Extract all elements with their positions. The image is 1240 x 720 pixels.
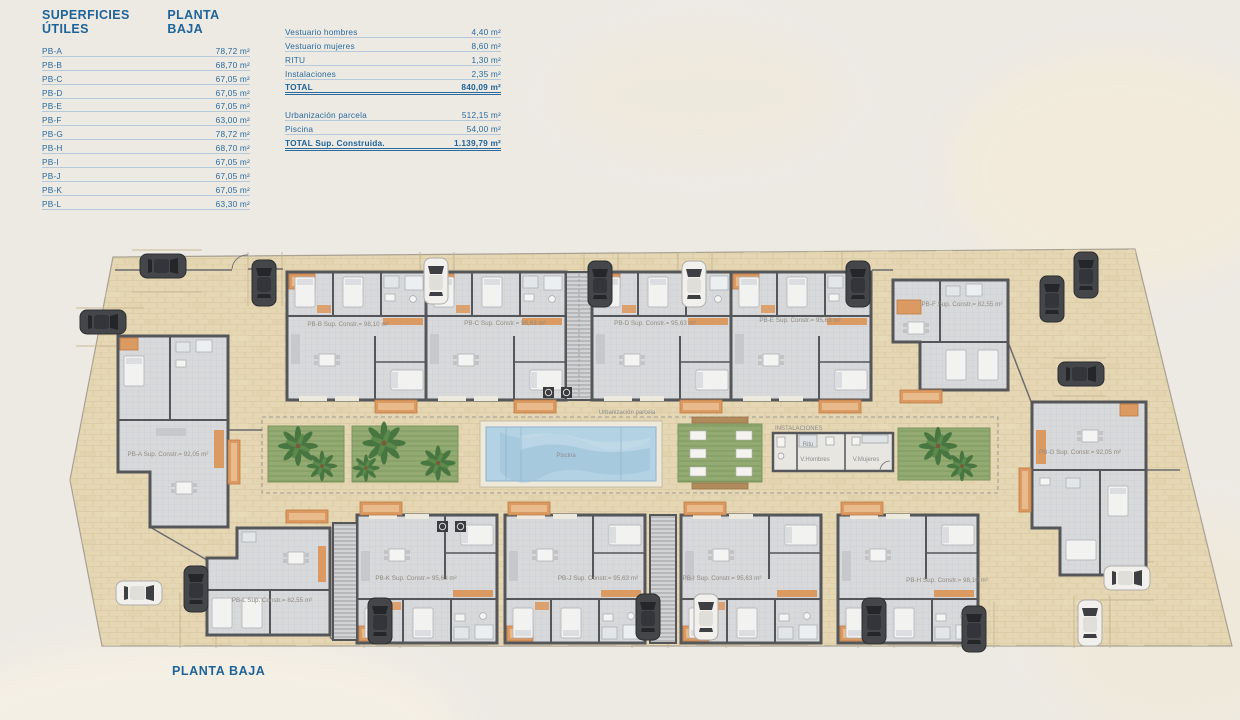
resumen-table: Vestuario hombres4,40 m² Vestuario mujer… (285, 24, 501, 151)
unit-label-pb-d: PB-D Sup. Constr.= 95,63 m² (614, 320, 696, 327)
building-top-strip (287, 272, 871, 413)
car-icon (636, 594, 660, 640)
palm-tree-icon (420, 445, 455, 480)
terrace (360, 502, 402, 515)
row-value: 67,05 m² (216, 101, 250, 111)
table-row: PB-J67,05 m² (42, 168, 250, 182)
table-title-right: PLANTA BAJA (167, 8, 250, 36)
row-value: 512,15 m² (462, 110, 501, 120)
pool-label: Piscina (556, 453, 576, 459)
table-row: Urbanización parcela512,15 m² (285, 107, 501, 121)
car-icon (1078, 600, 1102, 646)
row-value: 2,35 m² (471, 69, 501, 79)
table-row: PB-B68,70 m² (42, 57, 250, 71)
equipment-box (455, 521, 466, 532)
palm-tree-icon (919, 427, 957, 465)
car-icon (1104, 566, 1150, 590)
urbanizacion-label: Urbanización parcela (599, 410, 656, 416)
row-label: PB-G (42, 129, 63, 139)
total-row: TOTAL Sup. Construida.1.139,79 m² (285, 135, 501, 151)
row-value: 78,72 m² (216, 129, 250, 139)
row-value: 67,05 m² (216, 185, 250, 195)
car-icon (140, 254, 186, 278)
unit-pb-d (592, 272, 732, 401)
row-label: TOTAL Sup. Construida. (285, 138, 385, 148)
terrace (684, 502, 726, 515)
palm-tree-icon (352, 454, 379, 481)
pool: Piscina (480, 421, 662, 487)
row-label: Instalaciones (285, 69, 336, 79)
terrace (819, 400, 861, 413)
row-value: 1.139,79 m² (454, 138, 501, 148)
table-row: RITU1,30 m² (285, 52, 501, 66)
terrace (375, 400, 417, 413)
car-icon (588, 261, 612, 307)
unit-label-pb-k: PB-K Sup. Constr.= 95,63 m² (375, 575, 456, 582)
terrace (900, 390, 942, 403)
table-title: SUPERFICIES ÚTILES PLANTA BAJA (42, 8, 250, 36)
unit-label-pb-e: PB-E Sup. Constr.= 95,63 m² (759, 317, 840, 324)
equipment-box (543, 387, 554, 398)
car-icon (862, 598, 886, 644)
unit-label-pb-f: PB-F Sup. Constr.= 82,55 m² (921, 301, 1002, 308)
terrace (286, 510, 328, 523)
row-label: TOTAL (285, 82, 313, 92)
unit-label-pb-h: PB-H Sup. Constr.= 98,10 m² (906, 577, 988, 584)
row-value: 63,00 m² (216, 115, 250, 125)
terrace (508, 502, 550, 515)
car-icon (846, 261, 870, 307)
row-label: Vestuario mujeres (285, 41, 355, 51)
row-value: 78,72 m² (216, 46, 250, 56)
row-value: 67,05 m² (216, 88, 250, 98)
table-title-left: SUPERFICIES ÚTILES (42, 8, 167, 36)
terrace (841, 502, 883, 515)
terrace (228, 440, 240, 484)
row-label: Urbanización parcela (285, 110, 367, 120)
table-row: Instalaciones2,35 m² (285, 66, 501, 80)
service-block: INSTALACIONES Ritu V.Hombres V.Mujeres (773, 426, 893, 471)
row-value: 840,09 m² (461, 82, 501, 92)
row-label: PB-L (42, 199, 61, 209)
unit-label-pb-b: PB-B Sup. Constr.= 98,10 m² (307, 321, 388, 328)
terrace (1019, 468, 1031, 512)
row-value: 8,60 m² (471, 41, 501, 51)
row-label: PB-C (42, 74, 63, 84)
table-row: PB-G78,72 m² (42, 126, 250, 140)
palm-tree-icon (362, 421, 405, 464)
car-icon (1058, 362, 1104, 386)
instalaciones-label: INSTALACIONES (775, 426, 823, 432)
unit-label-pb-g: PB-G Sup. Constr.= 92,05 m² (1039, 449, 1121, 456)
row-value: 67,05 m² (216, 171, 250, 181)
table-row: Vestuario hombres4,40 m² (285, 24, 501, 38)
page: Piscina INSTALACIONES Ri (0, 0, 1240, 720)
unit-label-pb-c: PB-C Sup. Constr.= 95,63 m² (464, 320, 546, 327)
row-value: 1,30 m² (471, 55, 501, 65)
car-icon (368, 598, 392, 644)
row-label: PB-F (42, 115, 62, 125)
total-row: TOTAL840,09 m² (285, 80, 501, 96)
floor-title: PLANTA BAJA (172, 664, 265, 678)
palm-tree-icon (278, 426, 318, 466)
row-label: PB-B (42, 60, 62, 70)
table-row: PB-A78,72 m² (42, 43, 250, 57)
table-row: PB-H68,70 m² (42, 140, 250, 154)
row-value: 67,05 m² (216, 74, 250, 84)
palm-tree-icon (947, 451, 977, 481)
table-row: Piscina54,00 m² (285, 121, 501, 135)
palm-tree-icon (307, 451, 337, 481)
row-label: Piscina (285, 124, 313, 134)
row-label: Vestuario hombres (285, 27, 358, 37)
unit-label-pb-i: PB-I Sup. Constr.= 95,63 m² (683, 575, 762, 582)
unit-label-pb-j: PB-J Sup. Constr.= 95,63 m² (558, 575, 638, 582)
stair-core (333, 523, 357, 640)
row-value: 68,70 m² (216, 60, 250, 70)
car-icon (424, 258, 448, 304)
table-row: PB-C67,05 m² (42, 71, 250, 85)
unit-label-pb-a: PB-A Sup. Constr.= 92,05 m² (127, 451, 208, 458)
table-row: PB-K67,05 m² (42, 182, 250, 196)
equipment-box (437, 521, 448, 532)
row-value: 68,70 m² (216, 143, 250, 153)
row-value: 63,30 m² (216, 199, 250, 209)
row-label: PB-K (42, 185, 62, 195)
terrace (680, 400, 722, 413)
car-icon (252, 260, 276, 306)
row-label: PB-D (42, 88, 63, 98)
equipment-box (561, 387, 572, 398)
car-icon (694, 594, 718, 640)
table-row: PB-D67,05 m² (42, 85, 250, 99)
row-label: PB-E (42, 101, 62, 111)
unit-label-pb-l: PB-L Sup. Constr.= 82,55 m² (232, 597, 312, 604)
car-icon (116, 581, 162, 605)
superficies-table: SUPERFICIES ÚTILES PLANTA BAJA PB-A78,72… (42, 8, 250, 210)
pergola (678, 417, 762, 489)
row-label: PB-H (42, 143, 63, 153)
row-value: 4,40 m² (471, 27, 501, 37)
car-icon (682, 261, 706, 307)
row-label: RITU (285, 55, 305, 65)
table-row: PB-F63,00 m² (42, 112, 250, 126)
row-value: 67,05 m² (216, 157, 250, 167)
table-row: PB-I67,05 m² (42, 154, 250, 168)
ritu-label: Ritu (803, 442, 814, 448)
row-label: PB-A (42, 46, 62, 56)
vestuario-hombres-label: V.Hombres (800, 457, 829, 463)
unit-pb-b (287, 272, 427, 401)
row-label: PB-I (42, 157, 59, 167)
car-icon (1074, 252, 1098, 298)
car-icon (962, 606, 986, 652)
row-label: PB-J (42, 171, 61, 181)
vestuario-mujeres-label: V.Mujeres (853, 457, 879, 463)
car-icon (1040, 276, 1064, 322)
terrace (514, 400, 556, 413)
car-icon (184, 566, 208, 612)
row-value: 54,00 m² (467, 124, 501, 134)
table-row: PB-E67,05 m² (42, 99, 250, 113)
table-row: Vestuario mujeres8,60 m² (285, 38, 501, 52)
car-icon (80, 310, 126, 334)
table-row: PB-L63,30 m² (42, 196, 250, 210)
